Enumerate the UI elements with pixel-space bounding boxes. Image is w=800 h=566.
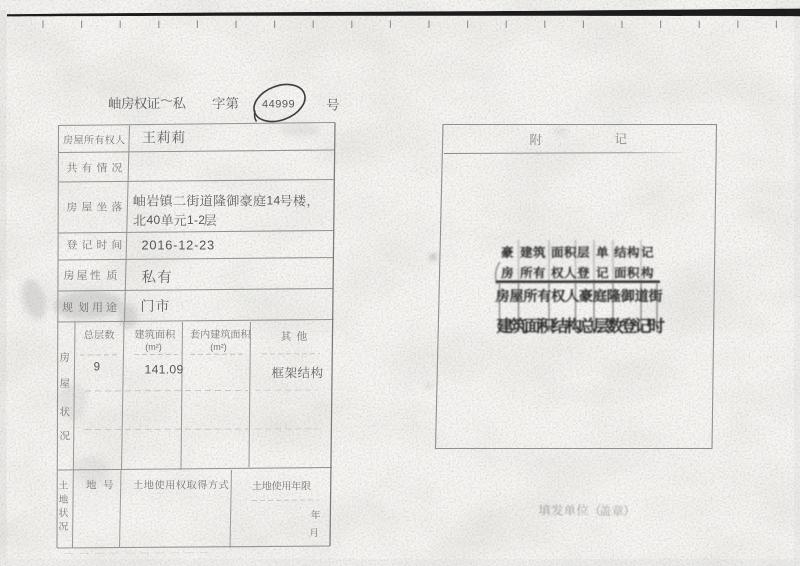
svg-text:14: 14 xyxy=(267,194,281,208)
svg-text:9: 9 xyxy=(94,362,100,374)
svg-text:40: 40 xyxy=(147,213,161,227)
svg-text:1-2: 1-2 xyxy=(187,213,205,227)
svg-text:(m²): (m²) xyxy=(145,342,162,352)
svg-text:141.09: 141.09 xyxy=(145,363,184,377)
svg-text:(m²): (m²) xyxy=(210,342,227,352)
svg-text:2016-12-23: 2016-12-23 xyxy=(142,237,215,252)
svg-text:44999: 44999 xyxy=(262,98,295,110)
